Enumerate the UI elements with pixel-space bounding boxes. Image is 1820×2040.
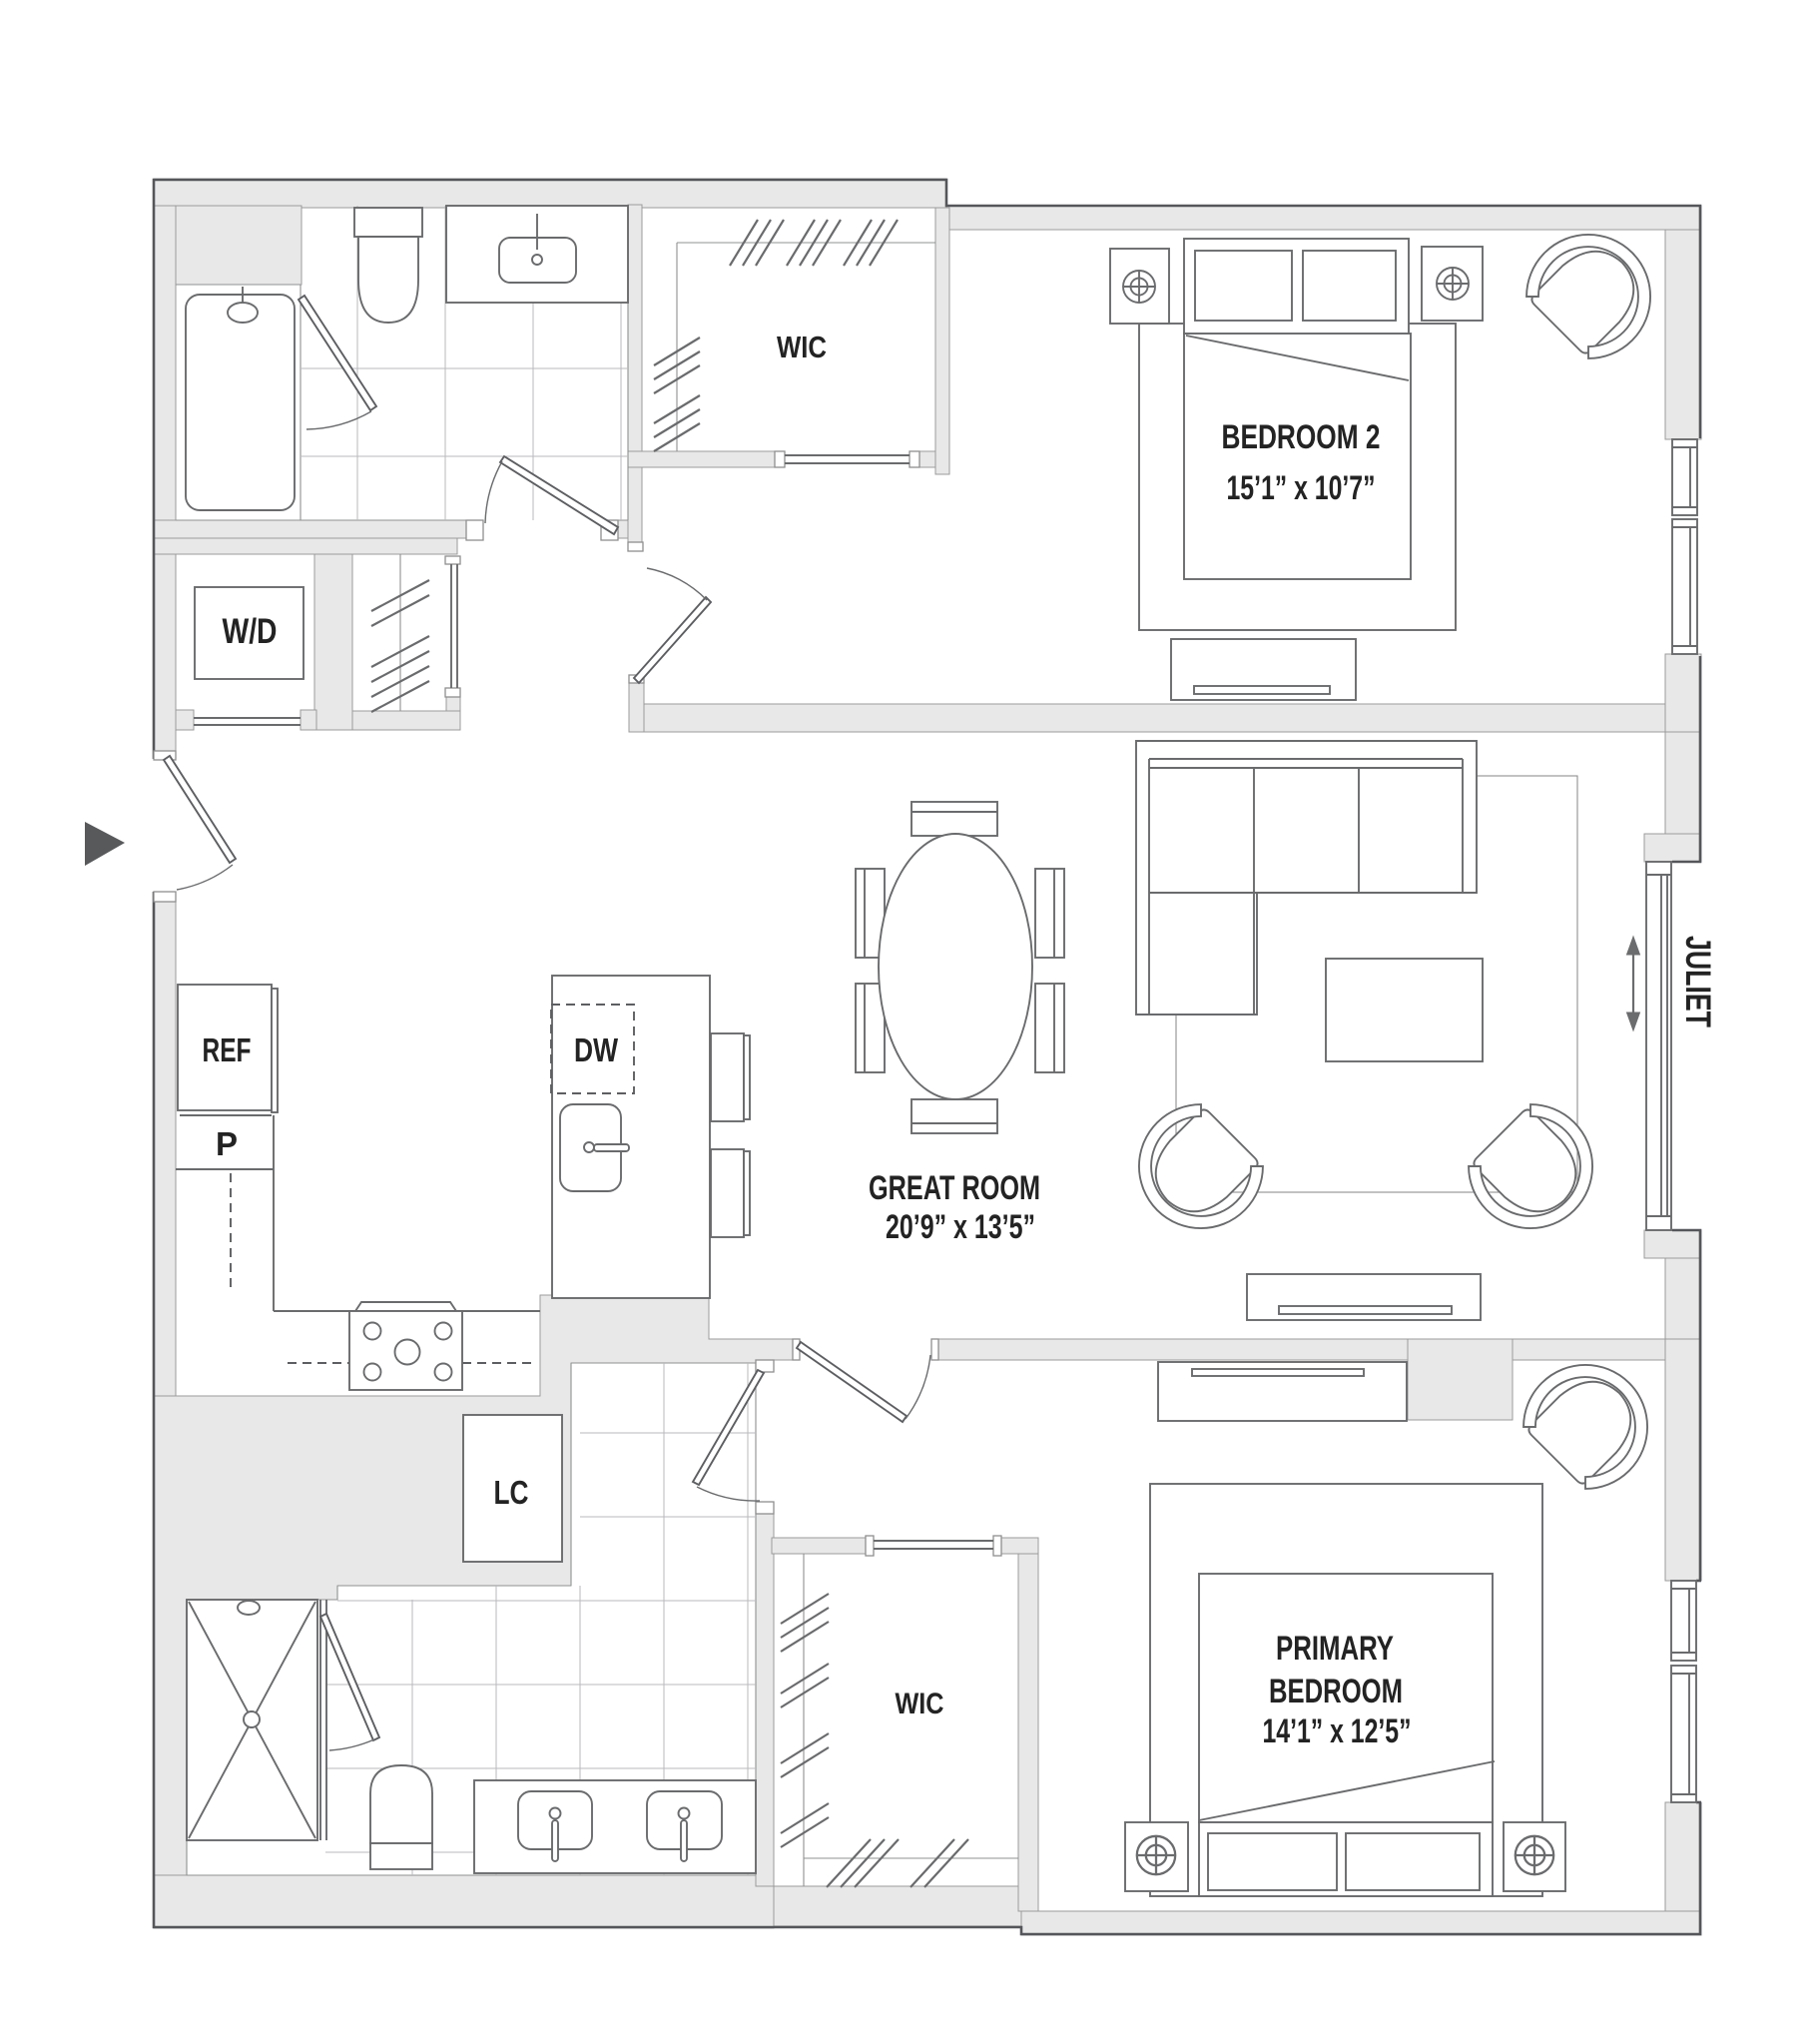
svg-text:WIC: WIC <box>777 330 827 364</box>
svg-text:BEDROOM: BEDROOM <box>1269 1673 1403 1710</box>
svg-text:JULIET: JULIET <box>1678 936 1717 1027</box>
svg-text:14’1” x 12’5”: 14’1” x 12’5” <box>1263 1712 1412 1750</box>
svg-text:REF: REF <box>203 1031 252 1068</box>
svg-text:PRIMARY: PRIMARY <box>1276 1630 1394 1668</box>
svg-text:GREAT ROOM: GREAT ROOM <box>869 1169 1040 1207</box>
svg-text:LC: LC <box>494 1474 529 1511</box>
svg-text:15’1” x 10’7”: 15’1” x 10’7” <box>1227 469 1376 507</box>
svg-text:WIC: WIC <box>896 1688 944 1720</box>
svg-text:P: P <box>216 1125 238 1162</box>
svg-text:DW: DW <box>574 1031 619 1068</box>
svg-text:BEDROOM 2: BEDROOM 2 <box>1222 418 1381 456</box>
svg-text:W/D: W/D <box>223 612 278 651</box>
svg-text:20’9” x 13’5”: 20’9” x 13’5” <box>886 1208 1035 1246</box>
